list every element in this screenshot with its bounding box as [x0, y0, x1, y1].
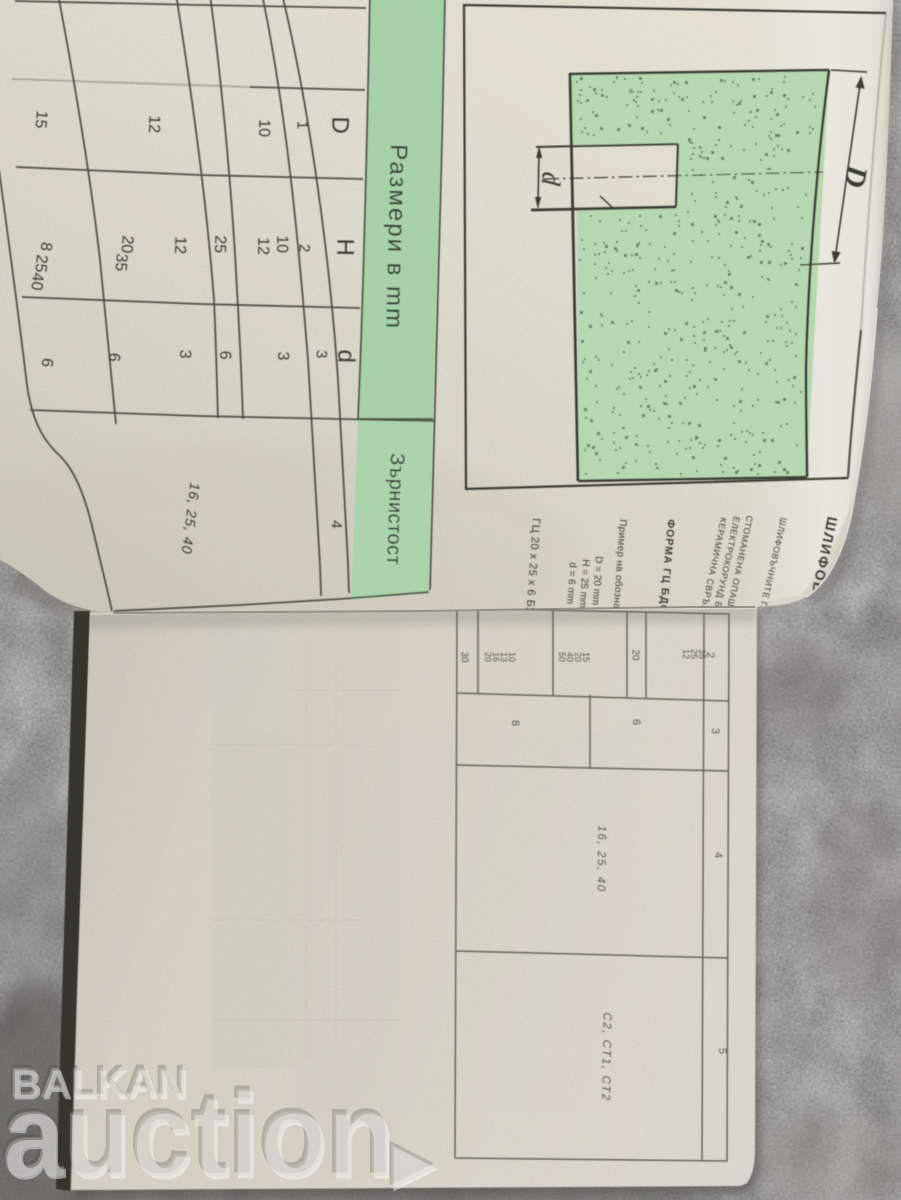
svg-text:8: 8 — [509, 720, 521, 726]
svg-text:15: 15 — [581, 652, 591, 662]
svg-text:25: 25 — [211, 235, 229, 253]
svg-text:С2, СТ1, СТ2: С2, СТ1, СТ2 — [599, 1012, 613, 1102]
svg-text:4: 4 — [327, 520, 345, 530]
svg-text:15: 15 — [31, 110, 50, 130]
svg-text:4: 4 — [712, 852, 724, 858]
svg-text:3: 3 — [312, 350, 329, 359]
svg-text:35: 35 — [697, 649, 707, 659]
svg-text:3: 3 — [709, 728, 721, 734]
svg-text:H: H — [331, 238, 358, 256]
svg-text:10: 10 — [507, 652, 517, 662]
svg-text:8: 8 — [37, 241, 55, 252]
svg-text:auction: auction — [2, 1068, 394, 1200]
svg-text:12: 12 — [171, 236, 189, 254]
svg-text:20: 20 — [118, 235, 136, 254]
svg-text:3: 3 — [274, 351, 291, 360]
svg-text:20: 20 — [629, 649, 640, 661]
svg-text:10: 10 — [273, 235, 290, 253]
svg-text:35: 35 — [112, 253, 130, 272]
svg-text:12: 12 — [254, 237, 271, 255]
svg-text:5: 5 — [716, 1048, 728, 1054]
svg-text:16, 25, 40: 16, 25, 40 — [594, 825, 607, 892]
svg-text:6: 6 — [630, 719, 642, 725]
svg-text:25: 25 — [31, 254, 50, 274]
svg-text:d: d — [332, 349, 359, 363]
svg-text:6: 6 — [105, 352, 123, 362]
svg-text:6: 6 — [38, 357, 56, 368]
svg-text:1: 1 — [294, 121, 311, 130]
svg-text:Размери в mm: Размери в mm — [380, 144, 412, 331]
svg-text:2: 2 — [296, 244, 313, 253]
svg-text:12: 12 — [145, 115, 163, 133]
svg-text:40: 40 — [27, 272, 46, 292]
svg-text:6: 6 — [216, 350, 233, 360]
svg-text:D: D — [326, 116, 353, 134]
svg-text:Зърнистост: Зърнистост — [382, 453, 408, 566]
svg-text:30: 30 — [458, 651, 469, 663]
svg-text:10: 10 — [255, 119, 272, 137]
svg-text:3: 3 — [176, 349, 193, 359]
